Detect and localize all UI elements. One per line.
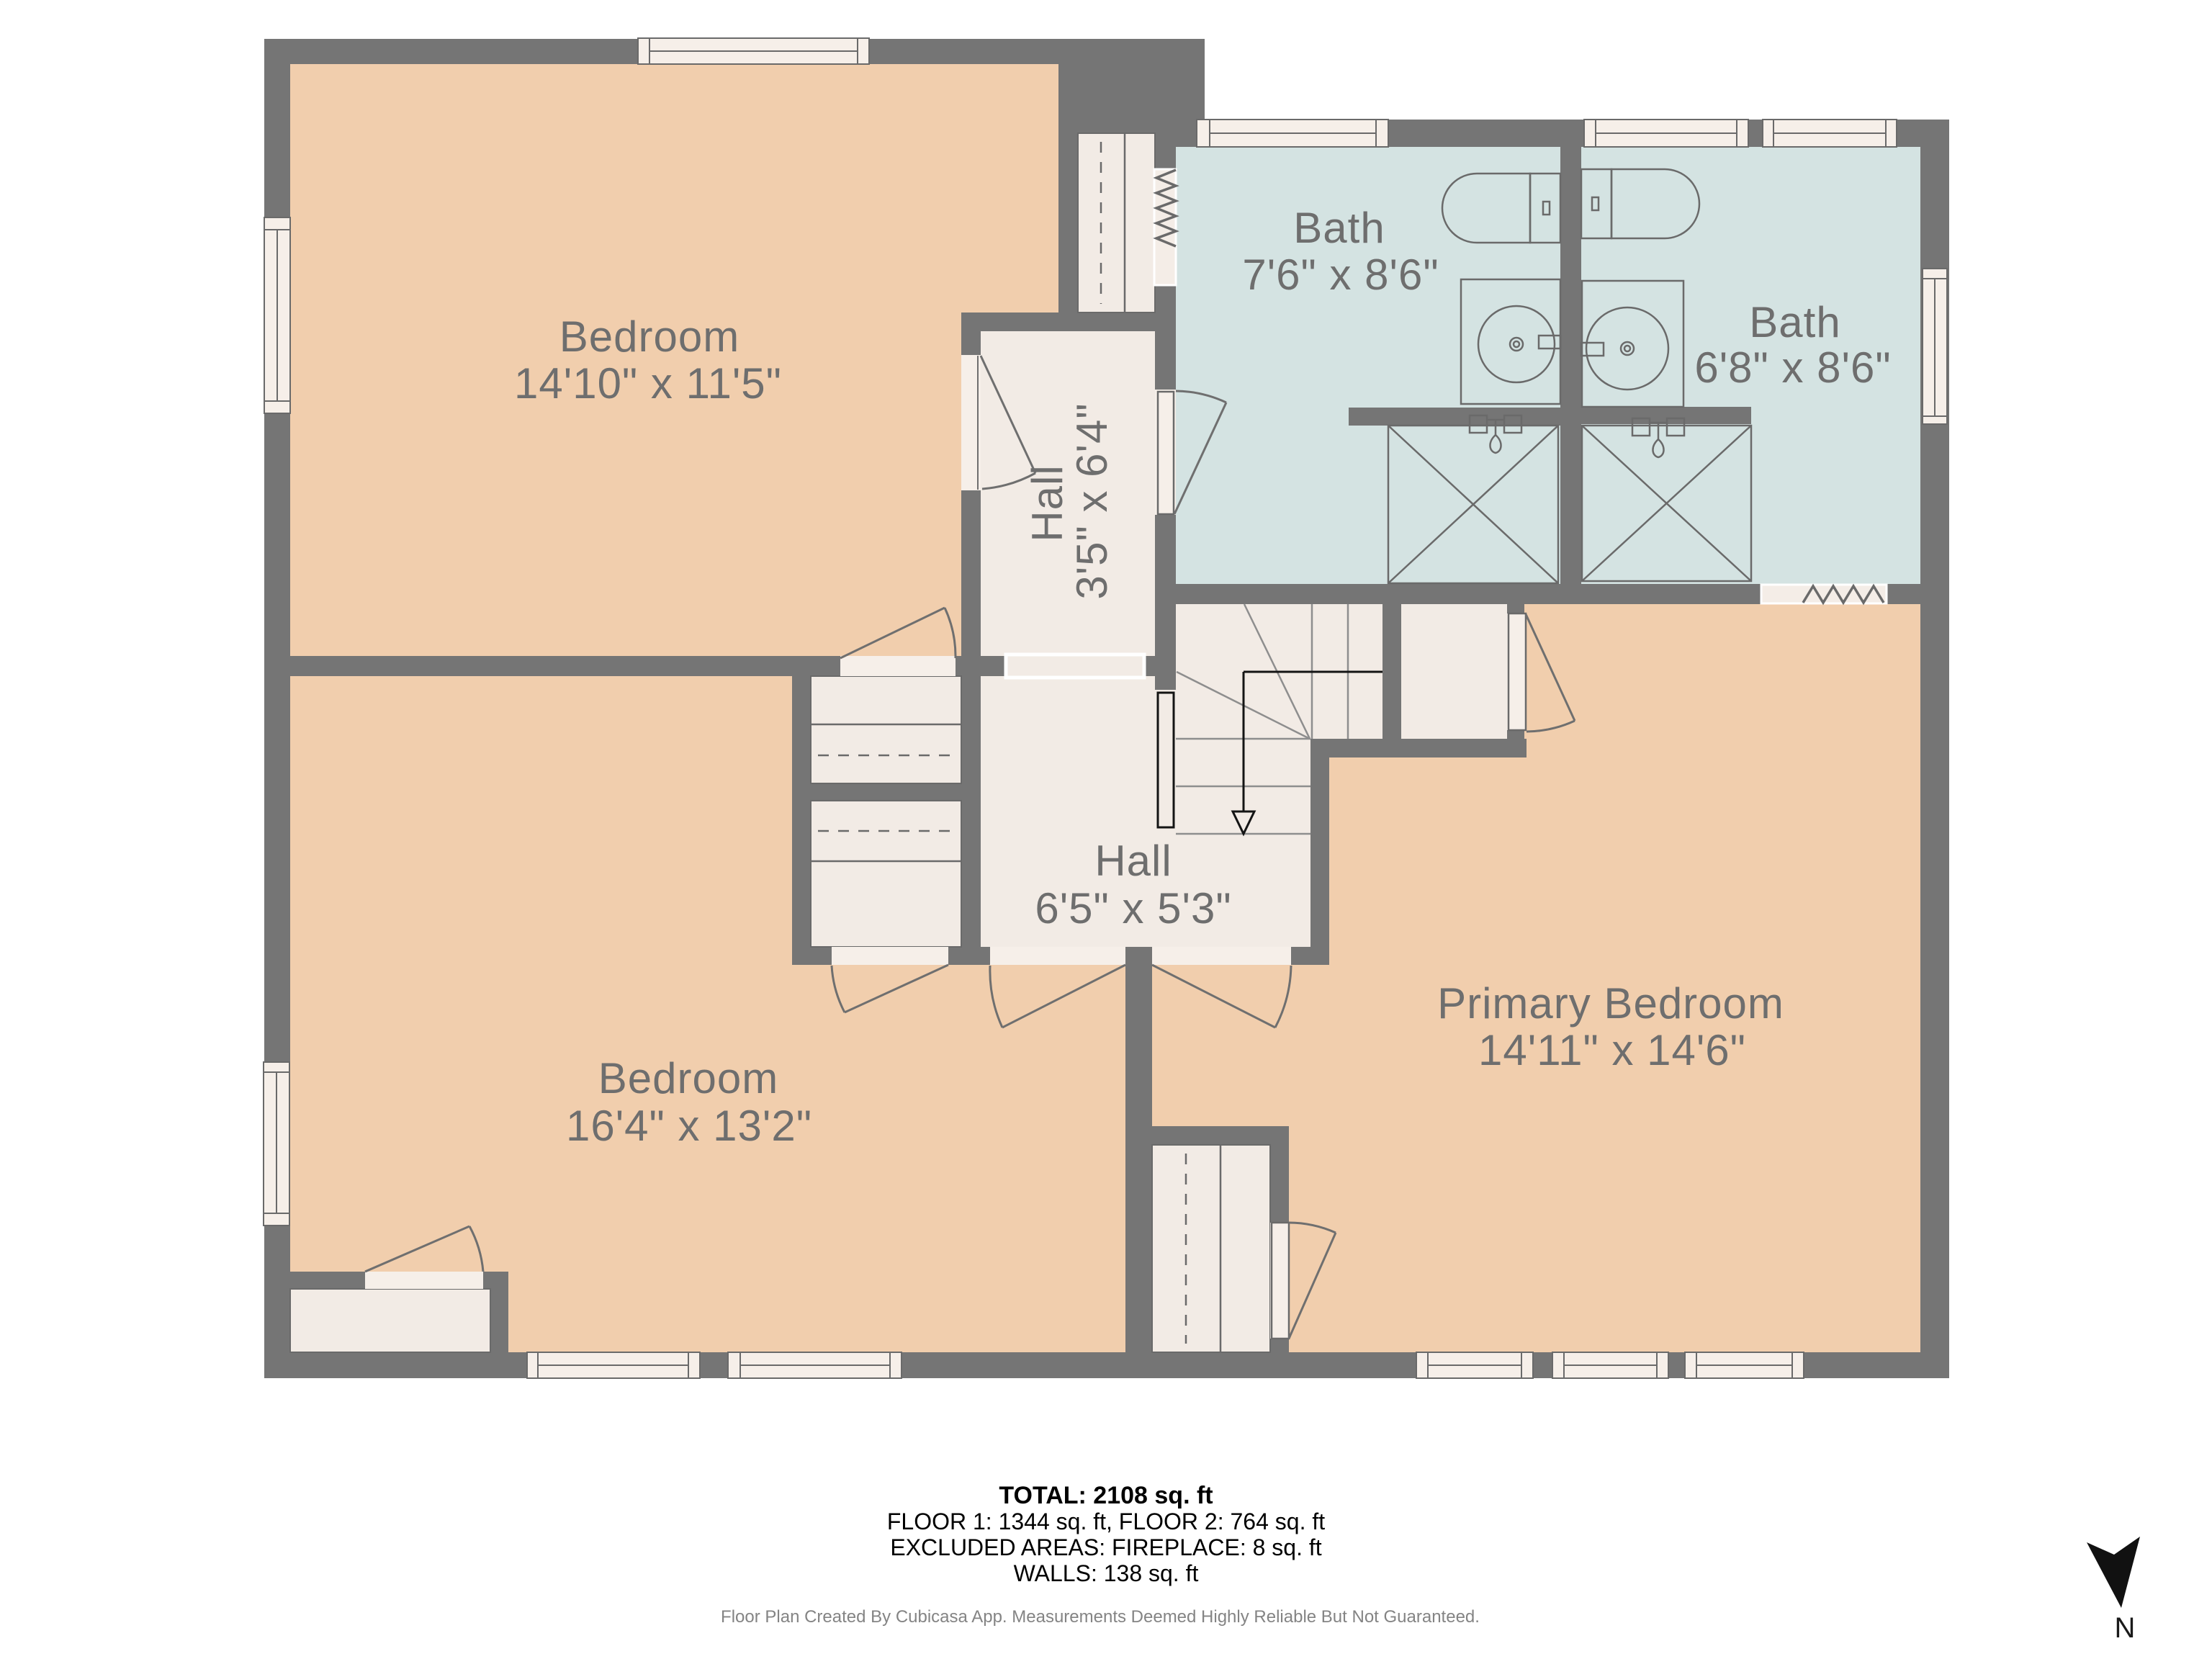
svg-text:WALLS: 138 sq. ft: WALLS: 138 sq. ft: [1014, 1560, 1199, 1586]
svg-text:7'6" x 8'6": 7'6" x 8'6": [1242, 251, 1439, 299]
svg-text:Bedroom: Bedroom: [559, 313, 739, 361]
svg-text:6'5" x 5'3": 6'5" x 5'3": [1035, 884, 1231, 932]
svg-text:N: N: [2115, 1612, 2136, 1644]
svg-text:3'5" x 6'4": 3'5" x 6'4": [1068, 403, 1116, 599]
svg-text:Bedroom: Bedroom: [598, 1054, 778, 1102]
svg-text:EXCLUDED AREAS: FIREPLACE: 8 s: EXCLUDED AREAS: FIREPLACE: 8 sq. ft: [890, 1534, 1321, 1560]
svg-text:Hall: Hall: [1094, 837, 1172, 885]
svg-text:16'4" x 13'2": 16'4" x 13'2": [566, 1102, 812, 1150]
svg-text:Bath: Bath: [1749, 298, 1840, 346]
svg-text:6'8" x 8'6": 6'8" x 8'6": [1694, 343, 1891, 392]
svg-text:Floor Plan Created By Cubicasa: Floor Plan Created By Cubicasa App. Meas…: [721, 1607, 1480, 1627]
svg-text:Hall: Hall: [1023, 464, 1071, 541]
svg-text:FLOOR 1: 1344 sq. ft, FLOOR 2:: FLOOR 1: 1344 sq. ft, FLOOR 2: 764 sq. f…: [887, 1509, 1325, 1534]
svg-text:TOTAL: 2108 sq. ft: TOTAL: 2108 sq. ft: [999, 1482, 1213, 1509]
svg-text:Bath: Bath: [1293, 204, 1385, 252]
svg-text:14'11" x 14'6": 14'11" x 14'6": [1478, 1026, 1746, 1074]
svg-text:14'10" x 11'5": 14'10" x 11'5": [514, 359, 782, 408]
svg-text:Primary Bedroom: Primary Bedroom: [1437, 979, 1784, 1028]
